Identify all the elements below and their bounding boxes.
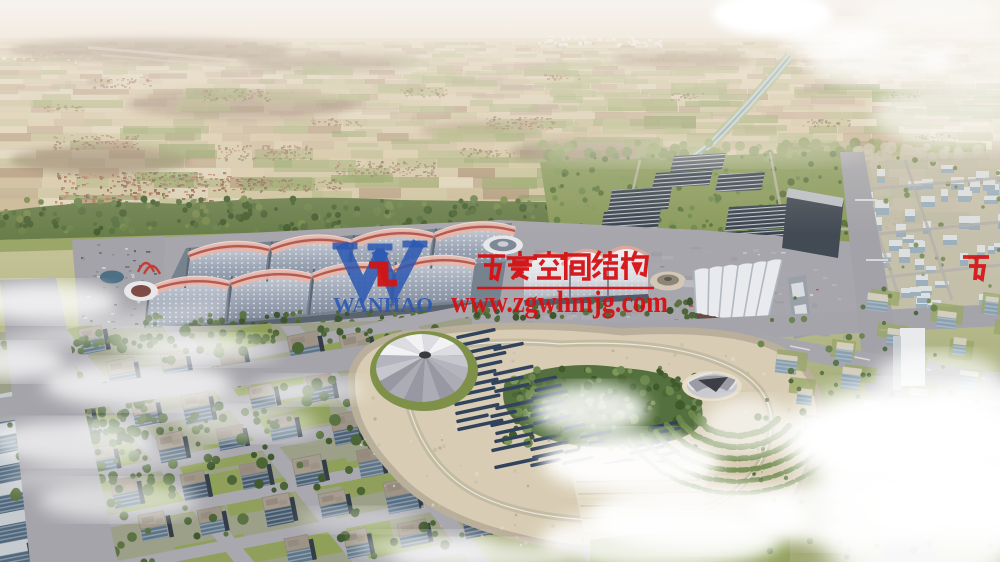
svg-text:WANHAO: WANHAO (333, 293, 433, 317)
svg-text:www.zgwhmjg.com: www.zgwhmjg.com (451, 284, 668, 319)
